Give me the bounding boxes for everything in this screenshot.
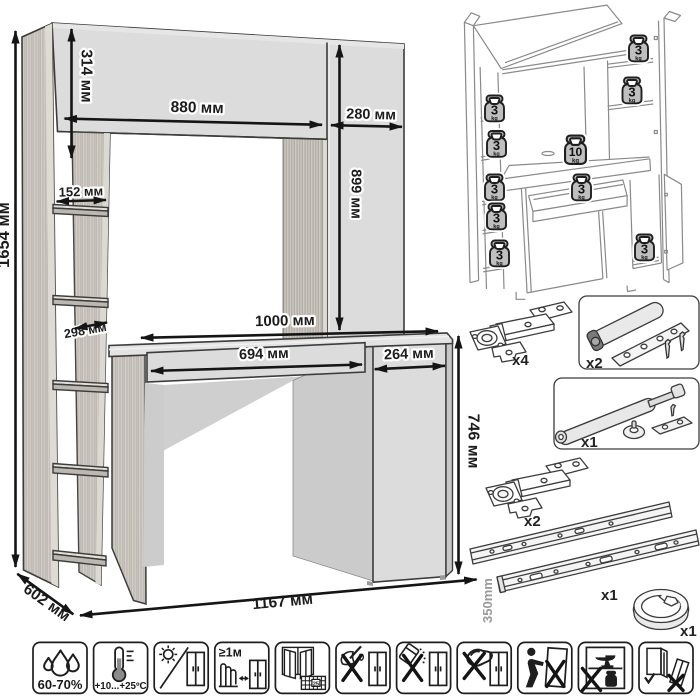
svg-text:1000 мм: 1000 мм bbox=[255, 312, 315, 330]
svg-text:x4: x4 bbox=[512, 352, 529, 369]
svg-text:880 мм: 880 мм bbox=[170, 99, 224, 117]
svg-text:25: 25 bbox=[313, 681, 319, 687]
svg-text:350mm: 350mm bbox=[480, 578, 495, 623]
svg-text:152 мм: 152 мм bbox=[58, 183, 103, 199]
svg-text:x1: x1 bbox=[581, 434, 598, 451]
svg-text:x2: x2 bbox=[524, 513, 541, 530]
svg-text:1654 мм: 1654 мм bbox=[0, 202, 13, 268]
svg-text:10: 10 bbox=[569, 145, 583, 159]
svg-text:60-70%: 60-70% bbox=[38, 677, 83, 692]
svg-text:264 мм: 264 мм bbox=[384, 346, 434, 364]
svg-text:899 мм: 899 мм bbox=[348, 169, 364, 219]
svg-text:x1: x1 bbox=[680, 623, 697, 640]
svg-text:x2: x2 bbox=[586, 355, 603, 372]
svg-text:746 мм: 746 мм bbox=[465, 414, 482, 469]
svg-text:694 мм: 694 мм bbox=[239, 346, 289, 363]
svg-text:280 мм: 280 мм bbox=[346, 106, 396, 123]
svg-text:314 мм: 314 мм bbox=[78, 49, 95, 102]
svg-text:kg: kg bbox=[572, 158, 579, 164]
svg-text:x1: x1 bbox=[601, 587, 618, 604]
svg-text:+10...+25ºC: +10...+25ºC bbox=[95, 681, 147, 692]
svg-text:≥1м: ≥1м bbox=[219, 645, 242, 659]
